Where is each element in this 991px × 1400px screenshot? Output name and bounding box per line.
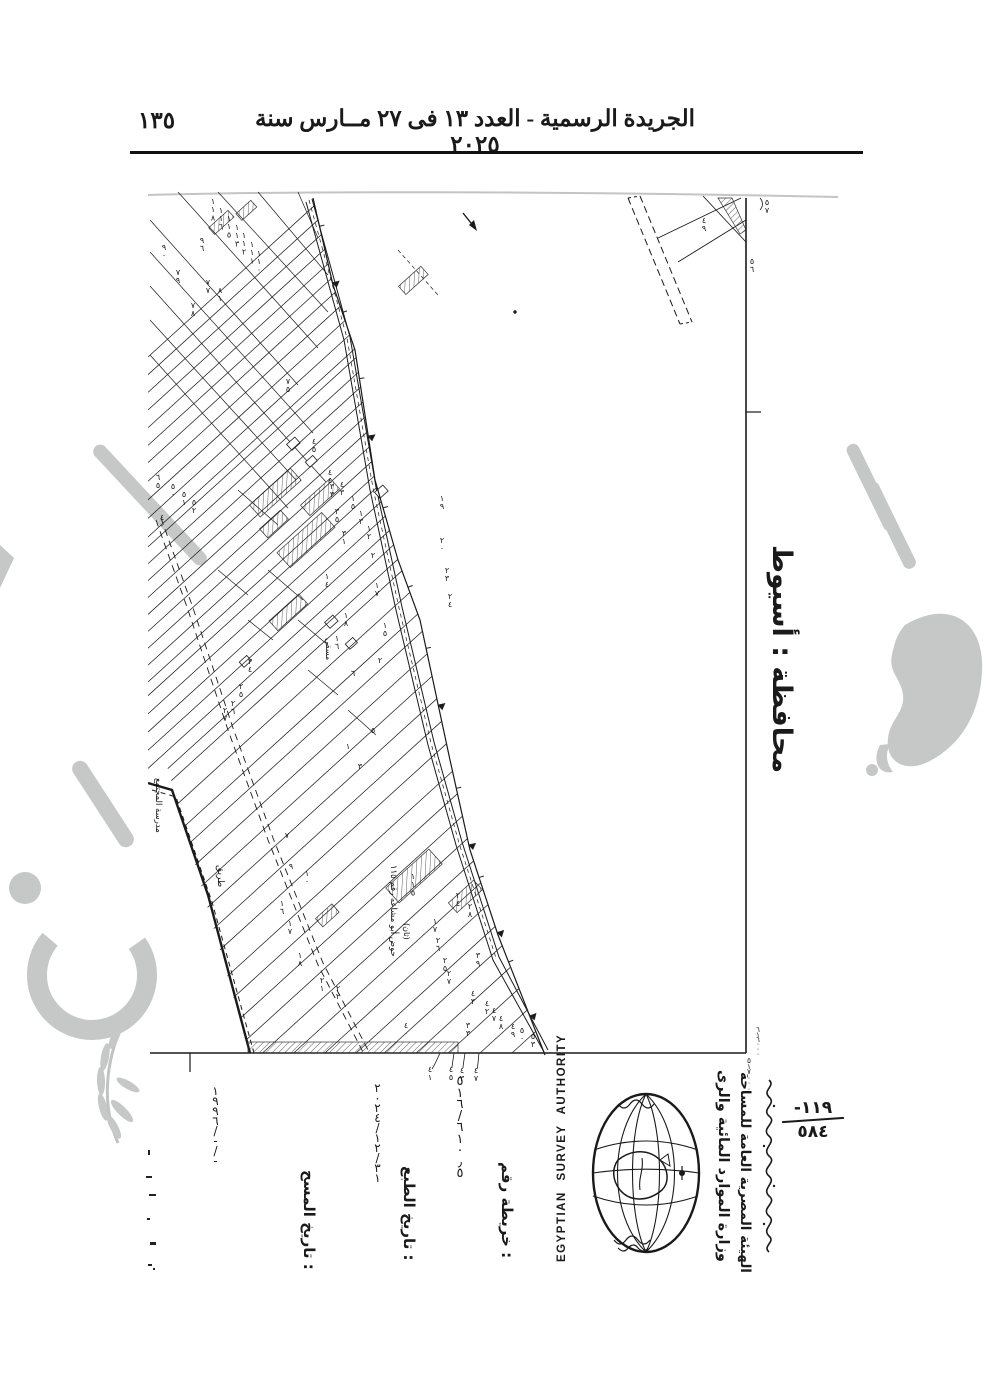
parcel-number: ٤٩ xyxy=(511,1022,515,1039)
fraction-denominator: ٥٨٤ xyxy=(778,1122,848,1142)
parcel-number: ٢٧ xyxy=(447,969,452,986)
map-number-value: ٥١٦/٦١٠٫٥ xyxy=(452,1076,468,1180)
parcel-number: ٤٩ xyxy=(702,216,706,233)
parcel-number: ١٨ xyxy=(344,611,349,628)
fraction-numerator-row: -١١٩ xyxy=(778,1098,848,1118)
parcel-number: ١٥ xyxy=(383,621,387,638)
parcel-number: ٨١ xyxy=(218,286,223,303)
parcel-number: ٤٣ xyxy=(340,480,345,497)
parcel-number: ٢٥ xyxy=(443,956,447,973)
parcel-number: ٢٨ xyxy=(468,902,473,919)
watermark-hook xyxy=(876,744,893,772)
parcel-number: ٢٤ xyxy=(448,592,452,609)
parcel-number: ٣٩ xyxy=(476,951,481,968)
parcel-number: ٥٠ xyxy=(171,482,175,499)
parcel-numbers: ١١٨١١٦١١٥١١٣١١٢١١١١١٠٩٦٩٠٧٩٧٧٨١٧٨٧٥٤٥٤٤٤… xyxy=(153,197,770,1083)
parcel-number: ٧٨ xyxy=(191,301,196,318)
hatched-parcels xyxy=(209,198,746,1053)
parcel-number: ٢٠ xyxy=(371,551,375,568)
parcel-number: ١٧ xyxy=(433,917,438,934)
parcel-number: ٤١ xyxy=(428,1065,432,1082)
parcel-number: ٢٦ xyxy=(231,699,235,716)
parcel-number: ٤٧ xyxy=(492,1006,497,1023)
paper-edge xyxy=(148,192,838,197)
survey-date-label: تاريخ المسح : xyxy=(300,1170,318,1270)
parcel-number: ١١٥ xyxy=(411,872,415,897)
grid-coordinate-right: ٦١٦٠٠٠ xyxy=(753,1028,763,1057)
parcel-number: ١٧ xyxy=(375,581,380,598)
parcel-number: ١١٨ xyxy=(211,197,216,222)
building-outlines xyxy=(239,437,388,667)
parcel-number: ٤٠ xyxy=(160,513,164,530)
parcel-number: ٣٣ xyxy=(330,482,335,499)
page-number: ١٣٥ xyxy=(138,108,175,134)
fraction-numerator: ١١٩ xyxy=(801,1098,832,1118)
survey-date-value: ١٩٩٦/-/- xyxy=(208,1086,223,1166)
watermark-slash xyxy=(845,442,898,533)
parcel-number: ٢٣ xyxy=(445,566,450,583)
parcel-number: ٦ xyxy=(351,669,355,678)
area-label: مدرسة المجتمع xyxy=(153,778,163,833)
parcel-number: ١٦ xyxy=(335,634,339,651)
gazette-scan-page: ١٣٥ الجريدة الرسمية - العدد ١٣ فى ٢٧ مــ… xyxy=(0,0,991,1400)
parcel-number: ٣٥ xyxy=(335,507,340,524)
parcel-number: ٥٠ xyxy=(520,1026,524,1043)
area-label: مسقى xyxy=(324,638,333,660)
parcel-number: ٧٥ xyxy=(286,377,291,394)
parcel-number: ٤٠ xyxy=(404,1021,408,1038)
watermark-dot xyxy=(9,872,41,904)
authority-name-arabic: الهيئة المصرية العامة للمساحة xyxy=(737,1072,753,1273)
parcel-number: ٣٣ xyxy=(466,1021,471,1038)
parcel-number: ٤٨ xyxy=(499,1014,504,1031)
print-date-value: ٢٠٢٤/١٢/٣١ xyxy=(370,1083,385,1183)
esa-globe-icon xyxy=(588,1090,704,1256)
parcel-number: ١ xyxy=(346,742,350,751)
field-strips xyxy=(148,198,545,1055)
print-date-label: تاريخ الطبع : xyxy=(400,1166,418,1261)
parcel-number: ٥٦ xyxy=(750,257,754,274)
esa-name-english: EGYPTIAN SURVEY AUTHORITY xyxy=(556,1034,568,1262)
parcel-number: ١٦ xyxy=(280,899,284,916)
parcel-number: ٢ xyxy=(378,656,382,665)
logo-calligraphy-band xyxy=(614,1100,654,1251)
laurel-icon xyxy=(96,1012,142,1143)
watermark-dot xyxy=(866,764,878,776)
survey-map: ١١٨١١٦١١٥١١٣١١٢١١١١١٠٩٦٩٠٧٩٧٧٨١٧٨٧٥٤٥٤٤٤… xyxy=(148,190,848,1090)
parcel-number: ٢١ xyxy=(320,976,324,993)
parcel-number: ٢٤ xyxy=(456,891,460,908)
parcel-number: ٩٠ xyxy=(162,243,166,260)
parcel-number: ١١٢ xyxy=(242,231,246,256)
page-fraction-stamp: -١١٩ ٥٨٤ xyxy=(778,1098,848,1142)
parcel-number: ٢٦ xyxy=(436,936,440,953)
area-label: (ثان) xyxy=(402,923,411,940)
parcel-number: ٥٧ xyxy=(765,198,770,215)
parcel-number: ٤٤ xyxy=(328,468,332,485)
north-arrow-icon xyxy=(463,213,477,231)
parcel-number: ٤٣ xyxy=(471,989,476,1006)
parcel-number: ٧٧ xyxy=(206,278,211,295)
parcel-number: ١١٣ xyxy=(235,223,240,248)
parcel-number: ٢٢ xyxy=(336,984,340,1001)
watermark-wedge xyxy=(0,545,14,588)
area-label: طريق xyxy=(215,865,225,887)
parcel-number: ١٥ xyxy=(351,494,355,511)
map-frame xyxy=(150,198,761,1072)
parcel-number: ١٠ xyxy=(305,869,309,886)
parcel-number: ٧٩ xyxy=(176,268,181,285)
ministry-name-arabic: وزارة الموارد المائية والرى xyxy=(715,1070,731,1262)
parcel-number: ١٣ xyxy=(359,509,364,526)
parcel-number: ٩ xyxy=(289,862,293,871)
parcel-number: ٣١ xyxy=(342,529,347,546)
watermark-slash xyxy=(865,480,918,571)
parcel-number: ١٤ xyxy=(325,572,329,589)
egypt-outline xyxy=(614,1152,670,1199)
parcel-number: ١١٥ xyxy=(227,214,231,239)
watermark xyxy=(0,0,991,1400)
map-number-label: خريطة رقم : xyxy=(498,1162,516,1258)
parcel-number: ١١٦ xyxy=(219,206,223,231)
parcel-number: ٩٦ xyxy=(200,236,204,253)
area-label: حوض أبو مشاعه رقم ١١٥ xyxy=(388,865,400,957)
parcel-number: ٥ xyxy=(371,726,375,735)
parcel-number: ١١٠ xyxy=(257,249,261,274)
parcel-number: ٤٥ xyxy=(312,437,316,454)
parcel-number: ٥٢ xyxy=(192,498,196,515)
watermark-crescent-icon xyxy=(15,898,168,1051)
parcel-number: ١٢ xyxy=(367,524,371,541)
parcel-number: ٤٢ xyxy=(485,999,489,1016)
grid-coordinate-bottom: ٥١٧٠٠٠ xyxy=(744,1058,754,1092)
header-rule xyxy=(130,151,863,154)
map-linework xyxy=(148,192,763,1069)
watermark-slash xyxy=(69,758,137,851)
governorate-label: محافظة : أسيوط xyxy=(766,545,797,773)
parcel-number: ٥١ xyxy=(182,490,186,507)
parcel-number: ١١١ xyxy=(250,240,254,265)
parcel-number: ٧ xyxy=(285,831,290,840)
parcel-number: ٢٥ xyxy=(239,682,243,699)
watermark-calligraphy-blob xyxy=(888,614,982,767)
parcel-number: ١٩ xyxy=(440,494,444,511)
watermark-slash xyxy=(90,442,209,569)
minus-mark: - xyxy=(794,1098,801,1118)
survey-point xyxy=(513,310,516,313)
parcel-number: ٣ xyxy=(358,762,363,771)
parcel-number: ٢٤ xyxy=(248,657,252,674)
parcel-number: ٥٣ xyxy=(531,1032,536,1049)
parcel-number: ٢٠ xyxy=(440,536,444,553)
parcel-number: ٦٥ xyxy=(156,473,160,490)
parcel-number: ١٨ xyxy=(298,951,303,968)
parcel-number: ٢٧ xyxy=(223,706,228,723)
parcel-number: ٤٧ xyxy=(474,1066,479,1083)
parcel-number: ١٧ xyxy=(288,919,293,936)
